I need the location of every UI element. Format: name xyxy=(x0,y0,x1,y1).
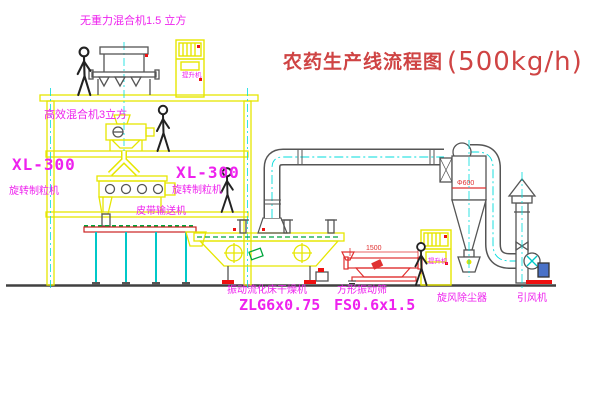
person-second-floor xyxy=(157,106,169,151)
label-dim-cyclone: Φ600 xyxy=(457,180,474,187)
bucket-elevator-top xyxy=(176,40,204,97)
flowsheet-canvas: 农药生产线流程图 (500kg/h) 无重力混合机1.5 立方 高效混合机3立方… xyxy=(0,0,600,403)
page-title: 农药生产线流程图 (500kg/h) xyxy=(283,44,583,74)
label-dim-sifter: 1500 xyxy=(366,245,382,252)
granulator xyxy=(97,176,175,226)
y-splitter-chute xyxy=(110,151,138,174)
label-dryer-name: 振动流化床干燥机 xyxy=(227,286,307,296)
label-elevator-top: 提升机 xyxy=(182,73,202,80)
label-fan: 引风机 xyxy=(517,294,547,304)
title-capacity: (500kg/h) xyxy=(447,47,583,77)
label-elevator-right: 提升机 xyxy=(428,259,448,266)
label-sifter-name: 方形振动筛 xyxy=(337,286,387,296)
square-sifter xyxy=(342,248,422,284)
label-sifter-model: FS0.6x1.5 xyxy=(334,298,415,313)
label-belt-conveyor: 皮带输送机 xyxy=(136,207,186,217)
label-dryer-model: ZLG6x0.75 xyxy=(239,298,320,313)
label-gravity-mixer: 无重力混合机1.5 立方 xyxy=(80,16,186,27)
title-chinese: 农药生产线流程图 xyxy=(283,47,443,74)
label-granulator-name-mid: 旋转制粒机 xyxy=(172,186,222,196)
label-granulator-name-left: 旋转制粒机 xyxy=(9,187,59,197)
belt-conveyor xyxy=(84,226,196,285)
exhaust-stack xyxy=(509,172,535,290)
fluidbed-dryer xyxy=(186,220,344,284)
label-high-efficiency-mixer: 高效混合机3立方 xyxy=(44,110,127,121)
label-granulator-model-left: XL-300 xyxy=(12,157,76,173)
label-cyclone: 旋风除尘器 xyxy=(437,294,487,304)
label-granulator-model-mid: XL-300 xyxy=(176,165,240,181)
cyclone-dust-collector xyxy=(440,140,486,277)
